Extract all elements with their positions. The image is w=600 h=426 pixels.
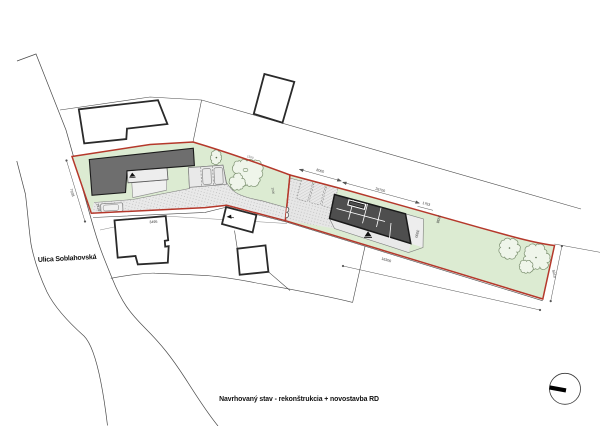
svg-text:3495: 3495 (149, 220, 157, 225)
svg-text:Navrhovaný stav - rekonštrukci: Navrhovaný stav - rekonštrukcia + novost… (219, 396, 379, 403)
